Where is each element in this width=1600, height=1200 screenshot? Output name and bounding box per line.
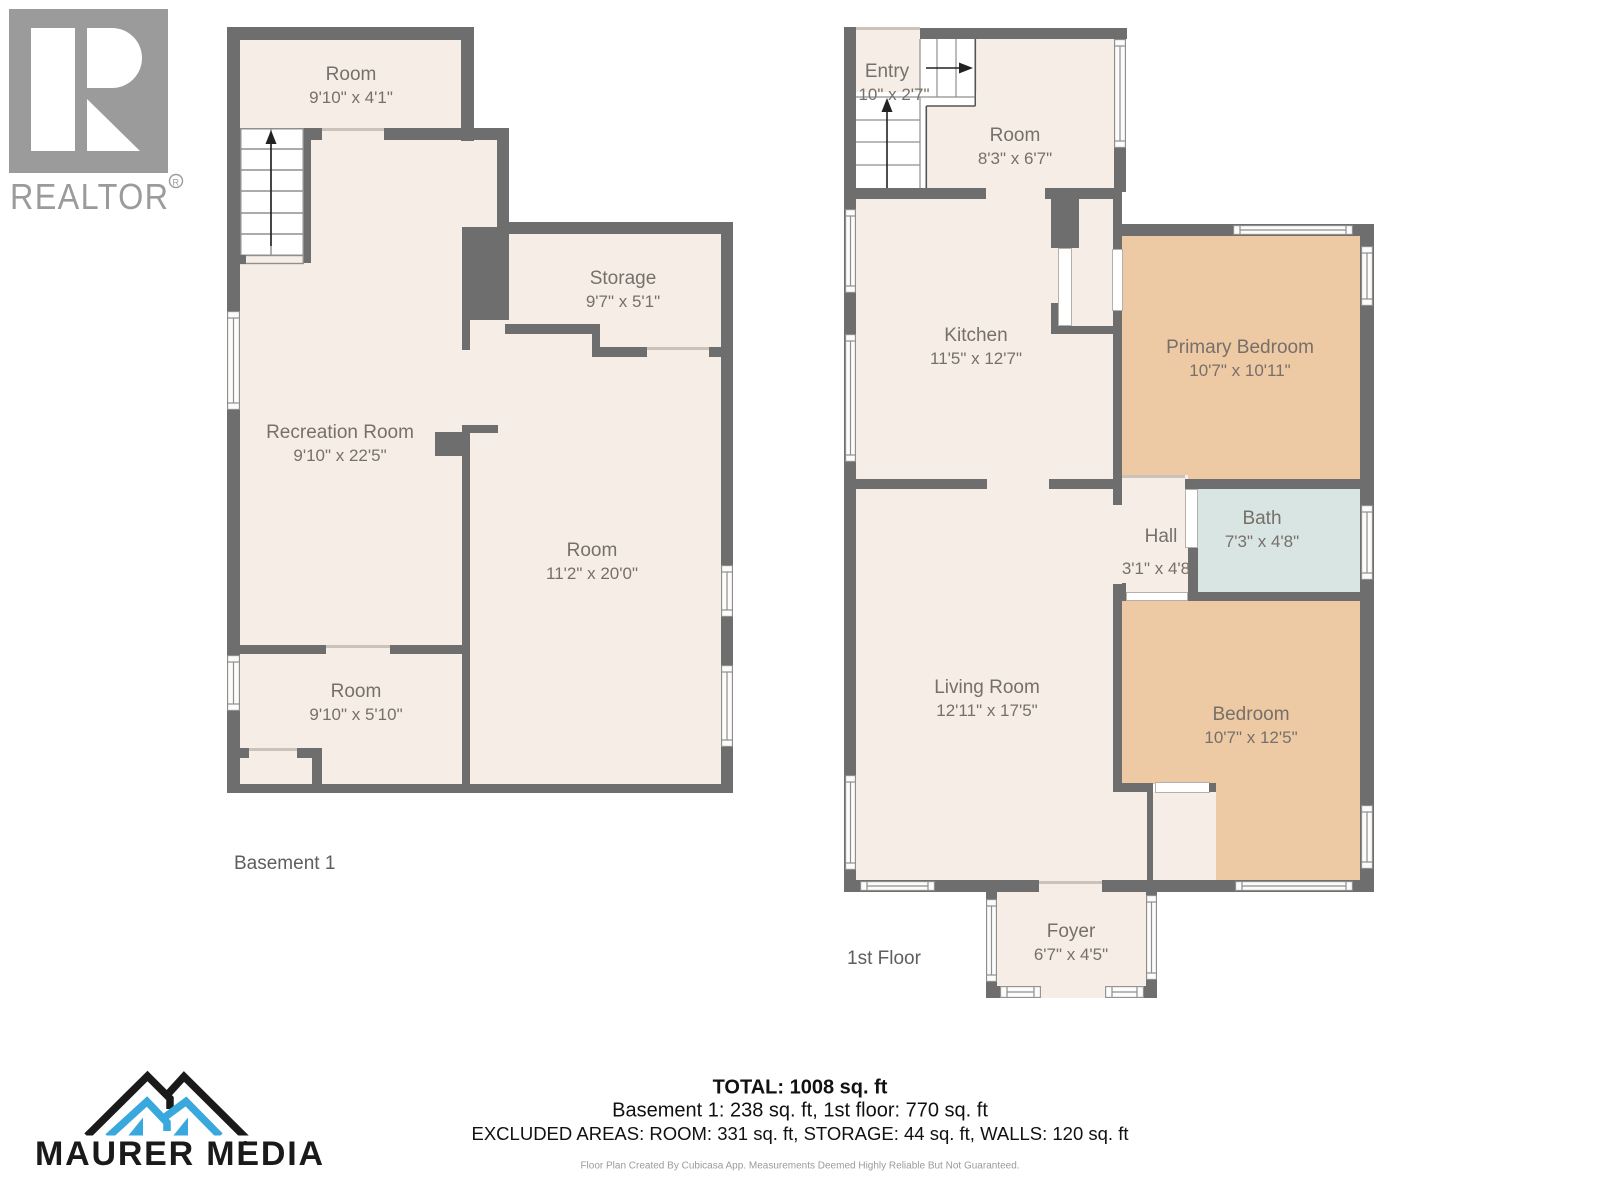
svg-text:MAURER MEDIA: MAURER MEDIA	[35, 1135, 325, 1173]
svg-text:R: R	[173, 178, 180, 188]
svg-text:REALTOR: REALTOR	[10, 177, 169, 217]
